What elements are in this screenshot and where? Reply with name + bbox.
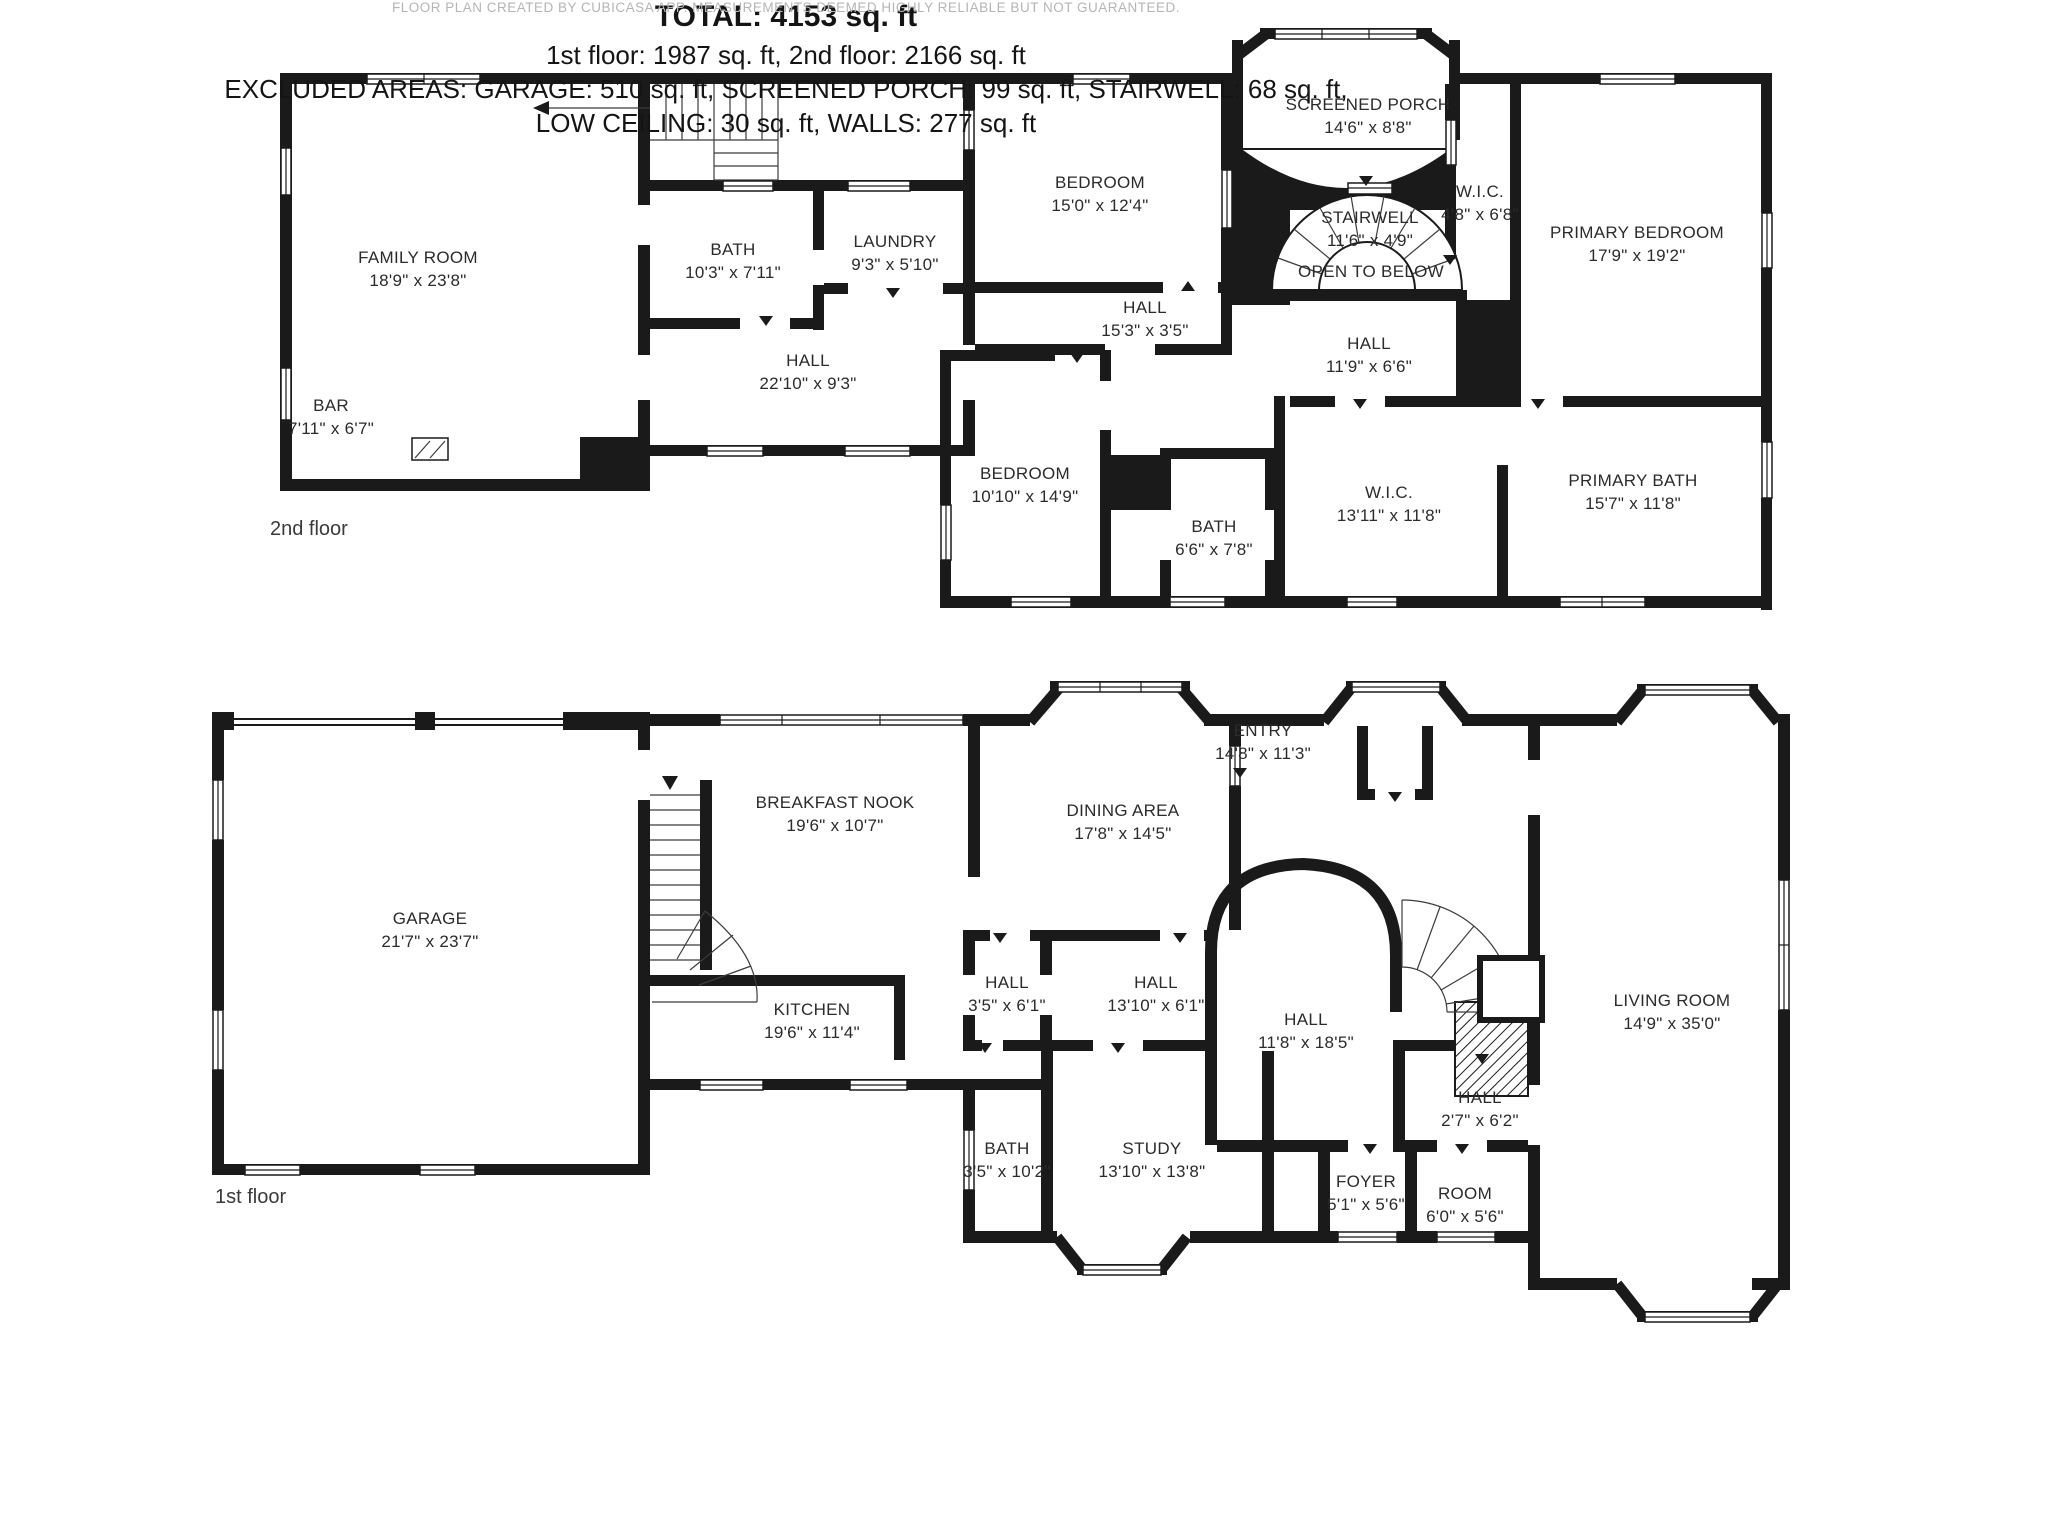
room-name: HALL (968, 972, 1046, 995)
room-name: PRIMARY BATH (1568, 470, 1697, 493)
room-dims: 22'10" x 9'3" (759, 373, 856, 396)
room-label-bath-2f: BATH 10'3" x 7'11" (685, 239, 781, 285)
room-name: DINING AREA (1067, 800, 1180, 823)
room-name: HALL (1441, 1087, 1519, 1110)
room-label-room: ROOM 6'0" x 5'6" (1426, 1183, 1504, 1229)
room-dims: 15'7" x 11'8" (1568, 493, 1697, 516)
room-label-hall-11: HALL 11'9" x 6'6" (1326, 333, 1412, 379)
room-name: HALL (1107, 972, 1204, 995)
room-dims: 4'8" x 6'8" (1441, 204, 1519, 227)
room-dims: 6'6" x 7'8" (1175, 539, 1253, 562)
room-name: FOYER (1327, 1171, 1405, 1194)
room-label-wic-2: W.I.C. 13'11" x 11'8" (1337, 482, 1441, 528)
room-label-stairwell: STAIRWELL 11'6" x 4'9" (1321, 207, 1419, 253)
room-name: GARAGE (381, 908, 478, 931)
room-name: ENTRY (1215, 720, 1311, 743)
room-dims: 18'9" x 23'8" (358, 270, 478, 293)
room-label-bath-small-2f: BATH 6'6" x 7'8" (1175, 516, 1253, 562)
room-name: BATH (685, 239, 781, 262)
room-name: LIVING ROOM (1614, 990, 1731, 1013)
floor-label-1st: 1st floor (215, 1186, 286, 1209)
excluded-areas-text-1: EXCLUDED AREAS: GARAGE: 510 sq. ft, SCRE… (0, 74, 1572, 105)
room-label-foyer: FOYER 5'1" x 5'6" (1327, 1171, 1405, 1217)
room-name: STAIRWELL (1321, 207, 1419, 230)
room-dims: 10'10" x 14'9" (972, 486, 1079, 509)
room-dims: 3'5" x 10'2" (963, 1161, 1050, 1184)
room-name: FAMILY ROOM (358, 247, 478, 270)
room-dims: 19'6" x 11'4" (764, 1022, 860, 1045)
fireplace (1480, 958, 1542, 1020)
room-label-bar: BAR 7'11" x 6'7" (288, 395, 374, 441)
room-dims: 15'0" x 12'4" (1051, 195, 1148, 218)
room-dims: 13'11" x 11'8" (1337, 505, 1441, 528)
room-dims: 17'9" x 19'2" (1550, 245, 1724, 268)
room-name: PRIMARY BEDROOM (1550, 222, 1724, 245)
room-dims: 19'6" x 10'7" (756, 815, 915, 838)
room-name: BATH (963, 1138, 1050, 1161)
floor-plan-drawing (0, 0, 2048, 1536)
room-label-study: STUDY 13'10" x 13'8" (1099, 1138, 1206, 1184)
room-dims: 5'1" x 5'6" (1327, 1194, 1405, 1217)
room-label-hall-2f: HALL 22'10" x 9'3" (759, 350, 856, 396)
room-label-wic-1: W.I.C. 4'8" x 6'8" (1441, 181, 1519, 227)
room-label-garage: GARAGE 21'7" x 23'7" (381, 908, 478, 954)
room-dims: 21'7" x 23'7" (381, 931, 478, 954)
room-dims: 15'3" x 3'5" (1101, 320, 1188, 343)
room-name: LAUNDRY (851, 231, 938, 254)
room-name: HALL (759, 350, 856, 373)
room-label-bedroom-1: BEDROOM 15'0" x 12'4" (1051, 172, 1148, 218)
room-dims: 14'8" x 11'3" (1215, 743, 1311, 766)
room-label-kitchen: KITCHEN 19'6" x 11'4" (764, 999, 860, 1045)
room-name: HALL (1101, 297, 1188, 320)
room-label-primary-bedroom: PRIMARY BEDROOM 17'9" x 19'2" (1550, 222, 1724, 268)
floor-label-2nd: 2nd floor (270, 518, 348, 541)
room-label-hall-15: HALL 15'3" x 3'5" (1101, 297, 1188, 343)
room-label-bedroom-2: BEDROOM 10'10" x 14'9" (972, 463, 1079, 509)
attribution-text: FLOOR PLAN CREATED BY CUBICASA APP. MEAS… (0, 0, 1572, 15)
room-dims: 3'5" x 6'1" (968, 995, 1046, 1018)
room-label-hall-big: HALL 11'8" x 18'5" (1258, 1009, 1354, 1055)
open-to-below-note: OPEN TO BELOW (1298, 262, 1444, 282)
floor-plan-page: FAMILY ROOM 18'9" x 23'8" BAR 7'11" x 6'… (0, 0, 2048, 1536)
room-label-hall-small: HALL 3'5" x 6'1" (968, 972, 1046, 1018)
room-name: HALL (1326, 333, 1412, 356)
room-label-family-room: FAMILY ROOM 18'9" x 23'8" (358, 247, 478, 293)
room-label-primary-bath: PRIMARY BATH 15'7" x 11'8" (1568, 470, 1697, 516)
room-name: ROOM (1426, 1183, 1504, 1206)
room-dims: 13'10" x 6'1" (1107, 995, 1204, 1018)
room-label-bath-1f: BATH 3'5" x 10'2" (963, 1138, 1050, 1184)
room-label-laundry: LAUNDRY 9'3" x 5'10" (851, 231, 938, 277)
room-label-hall-27: HALL 2'7" x 6'2" (1441, 1087, 1519, 1133)
room-dims: 17'8" x 14'5" (1067, 823, 1180, 846)
room-name: BREAKFAST NOOK (756, 792, 915, 815)
room-dims: 9'3" x 5'10" (851, 254, 938, 277)
room-name: W.I.C. (1337, 482, 1441, 505)
room-dims: 11'8" x 18'5" (1258, 1032, 1354, 1055)
room-label-dining-area: DINING AREA 17'8" x 14'5" (1067, 800, 1180, 846)
room-dims: 14'9" x 35'0" (1614, 1013, 1731, 1036)
floor-areas-text: 1st floor: 1987 sq. ft, 2nd floor: 2166 … (0, 40, 1572, 71)
room-label-living-room: LIVING ROOM 14'9" x 35'0" (1614, 990, 1731, 1036)
room-name: BEDROOM (1051, 172, 1148, 195)
room-name: BATH (1175, 516, 1253, 539)
bar-counter (412, 438, 448, 460)
room-label-hall-13: HALL 13'10" x 6'1" (1107, 972, 1204, 1018)
room-dims: 10'3" x 7'11" (685, 262, 781, 285)
room-name: STUDY (1099, 1138, 1206, 1161)
room-name: W.I.C. (1441, 181, 1519, 204)
room-dims: 6'0" x 5'6" (1426, 1206, 1504, 1229)
excluded-areas-text-2: LOW CEILING: 30 sq. ft, WALLS: 277 sq. f… (0, 108, 1572, 139)
room-name: HALL (1258, 1009, 1354, 1032)
room-name: KITCHEN (764, 999, 860, 1022)
area-summary: TOTAL: 4153 sq. ft 1st floor: 1987 sq. f… (0, 0, 1572, 142)
room-name: BEDROOM (972, 463, 1079, 486)
room-dims: 2'7" x 6'2" (1441, 1110, 1519, 1133)
room-label-breakfast-nook: BREAKFAST NOOK 19'6" x 10'7" (756, 792, 915, 838)
room-dims: 13'10" x 13'8" (1099, 1161, 1206, 1184)
room-label-entry: ENTRY 14'8" x 11'3" (1215, 720, 1311, 766)
room-dims: 11'6" x 4'9" (1321, 230, 1419, 253)
room-dims: 11'9" x 6'6" (1326, 356, 1412, 379)
room-name: BAR (288, 395, 374, 418)
room-dims: 7'11" x 6'7" (288, 418, 374, 441)
